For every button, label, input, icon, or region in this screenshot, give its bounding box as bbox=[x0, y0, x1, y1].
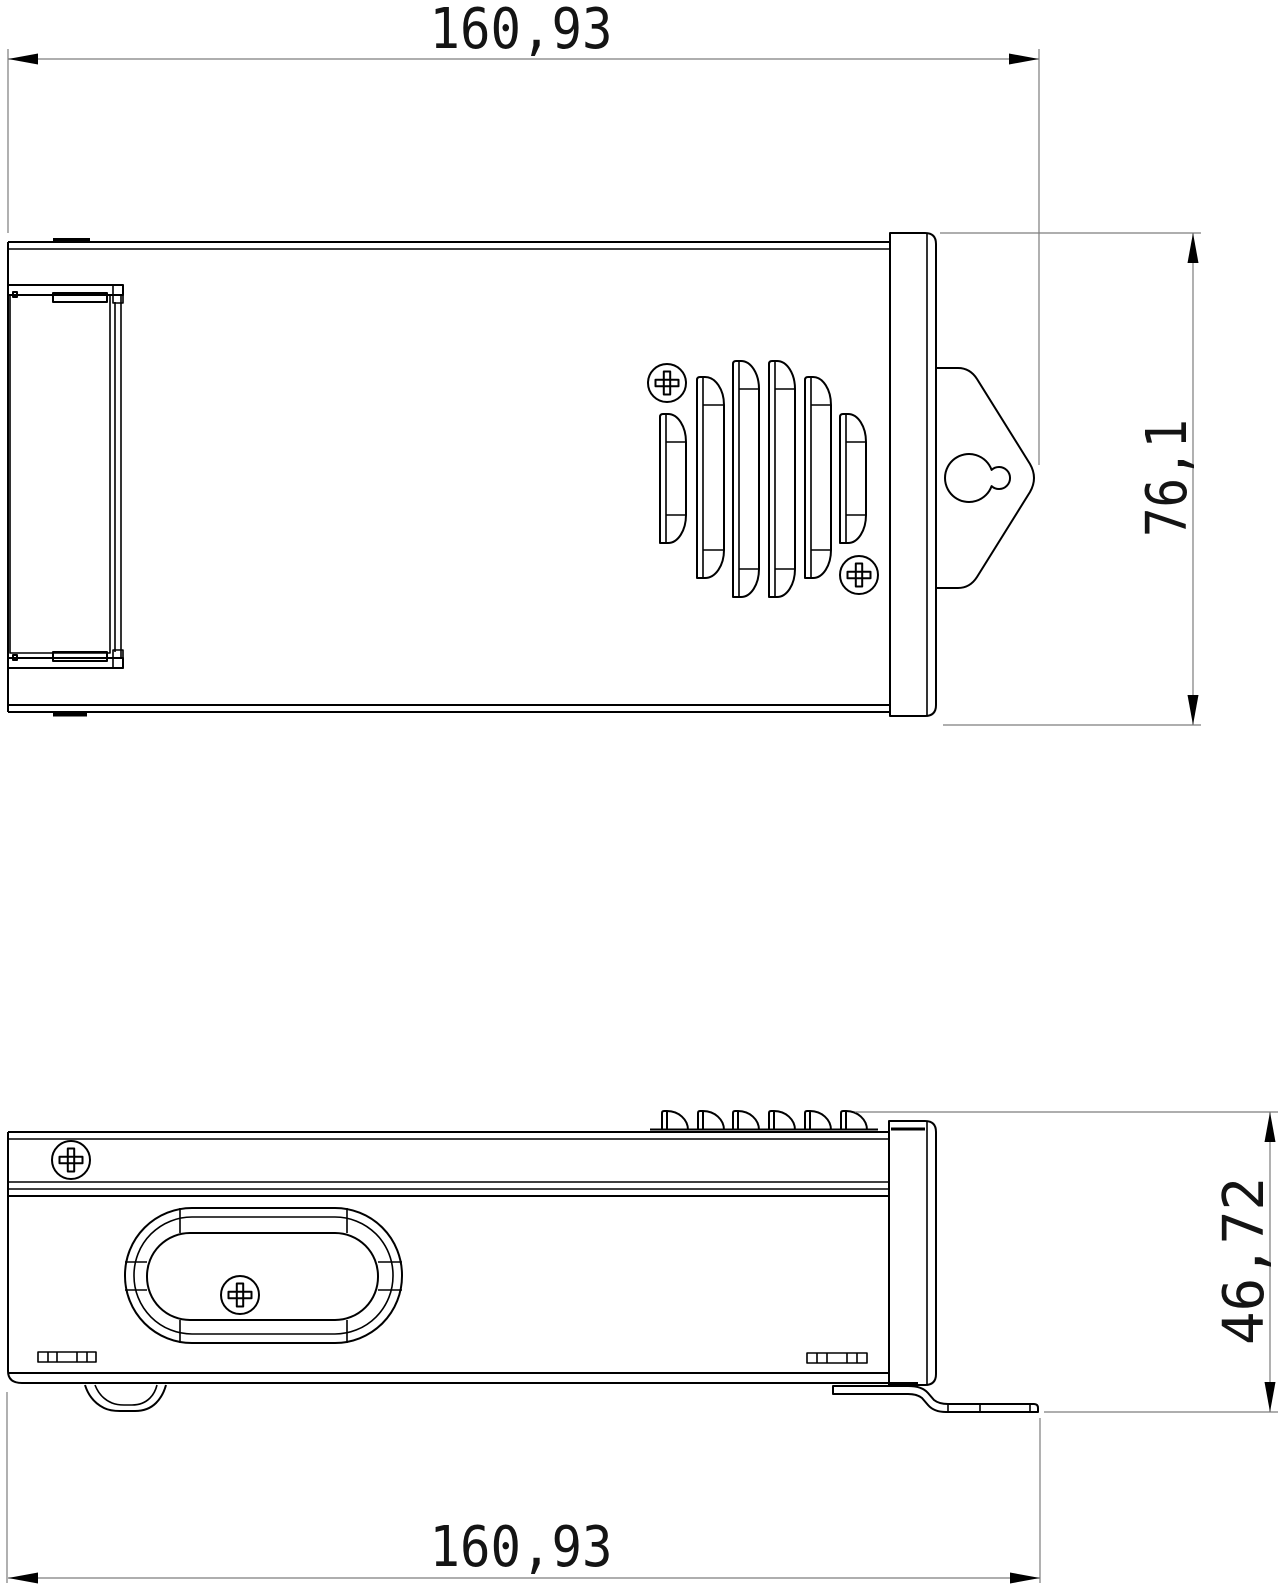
vent-outline bbox=[807, 1353, 867, 1363]
louver-slot-detail bbox=[739, 362, 759, 596]
terminal-cover bbox=[10, 295, 110, 653]
foot-inner bbox=[95, 1385, 157, 1405]
dimension-label-height: 76,1 bbox=[1135, 419, 1200, 537]
oval-outer bbox=[125, 1208, 402, 1343]
bottom-vent-left bbox=[38, 1352, 96, 1362]
top-edge-mark bbox=[53, 238, 90, 243]
end-cap-side-view bbox=[889, 1121, 936, 1385]
louver-slot-detail bbox=[811, 378, 831, 577]
louver-slot bbox=[660, 414, 686, 543]
phillips-screw-icon bbox=[840, 556, 878, 594]
fin-icon bbox=[805, 1111, 831, 1130]
fin-icon bbox=[698, 1111, 724, 1130]
dimension-overall-height: 76,1 bbox=[940, 233, 1201, 725]
arrowhead-down-icon bbox=[1188, 695, 1199, 725]
arrowhead-right-icon bbox=[1009, 54, 1039, 65]
phillips-screw-icon bbox=[221, 1276, 259, 1314]
arrowhead-left-icon bbox=[8, 54, 38, 65]
bracket-outline bbox=[833, 1386, 1038, 1412]
louver-slot bbox=[733, 361, 759, 597]
terminal-block-area bbox=[8, 285, 123, 668]
fin-icon bbox=[733, 1111, 759, 1130]
fin-icon bbox=[769, 1111, 795, 1130]
technical-drawing-page: 160,93 bbox=[0, 0, 1280, 1585]
louver-slot-detail bbox=[666, 415, 686, 542]
fin-icon bbox=[662, 1111, 688, 1130]
keyhole-slot-icon bbox=[945, 454, 1010, 502]
dimension-overall-length-top: 160,93 bbox=[8, 0, 1039, 465]
dimension-side-height: 46,72 bbox=[855, 1112, 1278, 1412]
louver-slot bbox=[840, 414, 866, 543]
vent-dividers bbox=[817, 1353, 857, 1363]
vent-dividers bbox=[48, 1352, 87, 1362]
dimension-overall-length-bottom: 160,93 bbox=[7, 1392, 1040, 1584]
louver-slot-detail bbox=[775, 362, 795, 596]
side-view bbox=[8, 1111, 1038, 1412]
phillips-screw-icon bbox=[648, 364, 686, 402]
oval-emboss bbox=[125, 1208, 402, 1343]
end-cap-outline bbox=[890, 233, 936, 716]
mounting-tab bbox=[936, 368, 1034, 588]
arrowhead-up-icon bbox=[1265, 1112, 1276, 1142]
louver-slot bbox=[769, 361, 795, 597]
arrowhead-down-icon bbox=[1265, 1382, 1276, 1412]
louver-slot bbox=[697, 377, 724, 578]
bracket-dividers bbox=[948, 1404, 1030, 1412]
rubber-foot bbox=[85, 1385, 166, 1411]
bottom-edge-mark bbox=[53, 712, 87, 717]
louver-slot-detail bbox=[846, 415, 866, 542]
end-cap-outline bbox=[889, 1121, 936, 1385]
louver-slot-detail bbox=[703, 378, 724, 577]
bottom-vent-right bbox=[807, 1353, 867, 1363]
vent-grille bbox=[660, 361, 866, 597]
dimension-label-bottom-length: 160,93 bbox=[430, 1515, 613, 1580]
end-cap-top-view bbox=[890, 233, 936, 716]
cooling-fins bbox=[650, 1111, 878, 1130]
arrowhead-up-icon bbox=[1188, 233, 1199, 263]
dimension-label-top-length: 160,93 bbox=[430, 0, 613, 62]
fin-icon bbox=[841, 1111, 867, 1130]
top-view bbox=[8, 233, 1034, 717]
technical-drawing: 160,93 bbox=[0, 0, 1280, 1585]
mounting-bracket bbox=[833, 1386, 1038, 1412]
dimension-label-side-height: 46,72 bbox=[1212, 1177, 1277, 1345]
arrowhead-right-icon bbox=[1010, 1573, 1040, 1584]
phillips-screw-icon bbox=[52, 1141, 90, 1179]
terminal-bottom-bar bbox=[8, 658, 123, 668]
louver-slot bbox=[805, 377, 831, 578]
side-band-lines bbox=[8, 1182, 889, 1189]
side-left-edge-and-lip bbox=[8, 1132, 918, 1383]
oval-inner bbox=[147, 1233, 378, 1320]
oval-transition-ticks bbox=[125, 1208, 402, 1343]
mounting-tab-outline bbox=[936, 368, 1034, 588]
arrowhead-left-icon bbox=[8, 1573, 38, 1584]
